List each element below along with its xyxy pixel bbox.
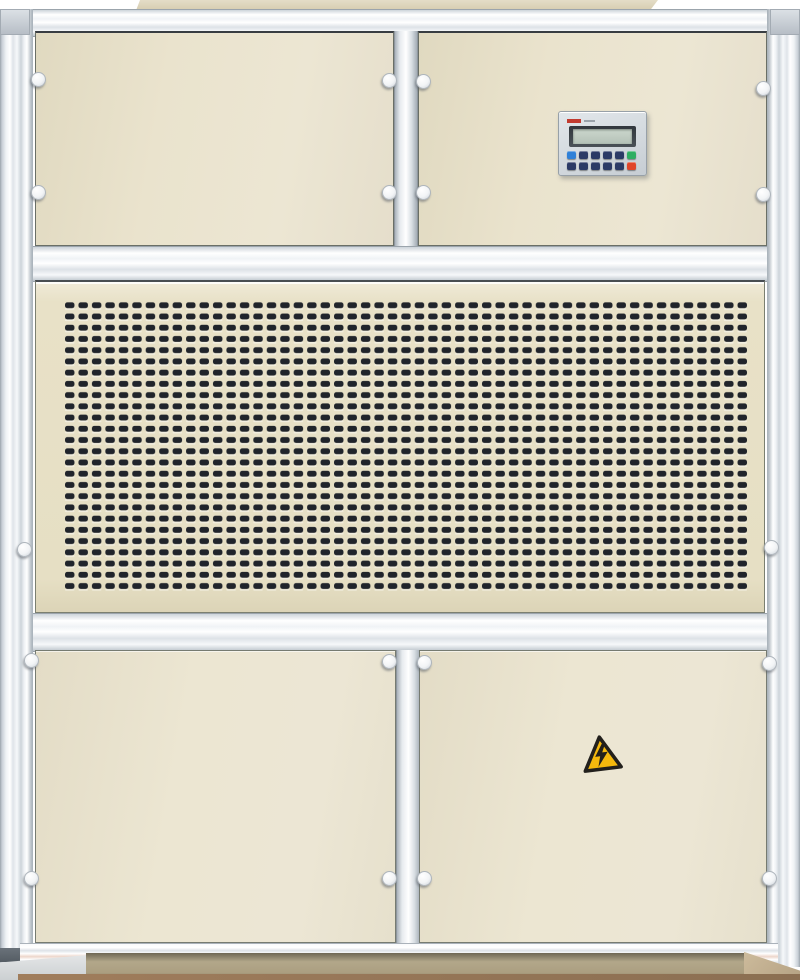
keypad-button-blue (567, 151, 576, 159)
frame-rail-right (767, 9, 800, 967)
fastener-knob (756, 81, 771, 96)
brand-logo (567, 119, 595, 123)
fastener-knob (416, 74, 431, 89)
fastener-knob (24, 653, 39, 668)
panel-top-left (35, 31, 394, 246)
corner-cap-left (0, 9, 30, 35)
door-bottom-left (35, 650, 396, 943)
keypad-button-navy (591, 162, 600, 170)
keypad-row-2 (567, 162, 640, 170)
keypad-button-navy (591, 151, 600, 159)
rail-middle-upper (33, 246, 767, 282)
fastener-knob (756, 187, 771, 202)
frame-rail-left (0, 9, 33, 967)
warning-sticker (579, 733, 625, 786)
fastener-knob (31, 72, 46, 87)
controller-panel (558, 111, 647, 176)
fastener-knob (764, 540, 779, 555)
keypad-button-navy (603, 162, 612, 170)
keypad-button-navy (579, 162, 588, 170)
divider-top (394, 31, 418, 246)
lcd-display (569, 126, 636, 147)
fastener-knob (416, 185, 431, 200)
fastener-knob (24, 871, 39, 886)
cabinet-unit (0, 0, 800, 980)
rail-middle-lower (33, 613, 767, 652)
keypad-button-navy (615, 162, 624, 170)
fastener-knob (762, 871, 777, 886)
door-bottom-right (419, 650, 767, 943)
fastener-knob (382, 654, 397, 669)
keypad-button-navy (603, 151, 612, 159)
grille-perforation (63, 300, 749, 592)
fastener-knob (762, 656, 777, 671)
controller-keypad (567, 151, 640, 173)
fastener-knob (382, 185, 397, 200)
lcd-screen (573, 129, 632, 144)
keypad-button-navy (615, 151, 624, 159)
fastener-knob (417, 655, 432, 670)
keypad-button-green (627, 151, 636, 159)
corner-cap-right (770, 9, 800, 35)
fastener-knob (31, 185, 46, 200)
divider-bottom (396, 650, 421, 943)
keypad-row-1 (567, 151, 640, 159)
grille-panel (35, 280, 765, 613)
keypad-button-red (627, 162, 636, 170)
keypad-button-navy (579, 151, 588, 159)
brand-subtext (584, 120, 595, 122)
keypad-button-navy (567, 162, 576, 170)
fastener-knob (382, 73, 397, 88)
fastener-knob (417, 871, 432, 886)
fastener-knob (382, 871, 397, 886)
high-voltage-lightning-icon (579, 733, 623, 776)
fastener-knob (17, 542, 32, 557)
brand-mark-icon (567, 119, 581, 123)
base-bottom-strip (18, 974, 800, 980)
